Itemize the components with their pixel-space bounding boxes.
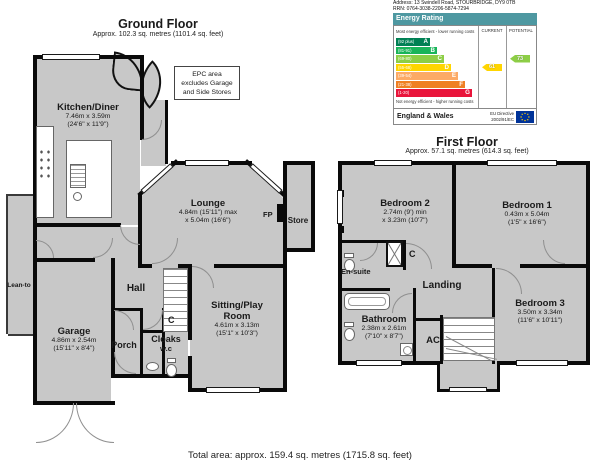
- window: [206, 387, 260, 393]
- room-dims: x 3.23m (10'7"): [355, 217, 455, 225]
- room-dims: 7.46m x 3.59m: [38, 113, 138, 121]
- lean-to-floor: [8, 196, 33, 334]
- window: [185, 160, 229, 166]
- cloaks-label: Cloaks w.c: [143, 334, 189, 353]
- room-name: w.c: [143, 345, 189, 354]
- band-letter: F: [459, 81, 463, 88]
- window: [449, 387, 487, 392]
- wall: [140, 55, 144, 105]
- room-name: Garage: [24, 326, 124, 337]
- ground-floor-subtitle: Approx. 102.3 sq. metres (1101.4 sq. fee…: [58, 31, 258, 38]
- cupboard-label: C: [168, 315, 175, 325]
- lean-to-label: Lean-to: [2, 282, 36, 290]
- window: [42, 54, 100, 60]
- wall: [33, 223, 121, 227]
- bedroom2-label: Bedroom 2 2.74m (9') min x 3.23m (10'7"): [355, 198, 455, 225]
- room-name: Bedroom 1: [477, 200, 577, 211]
- floorplan-page: Ground Floor Approx. 102.3 sq. metres (1…: [0, 0, 600, 464]
- sitting-label: Sitting/Play Room 4.61m x 3.13m (15'1" x…: [190, 300, 284, 338]
- room-name: Bathroom: [337, 314, 431, 325]
- ac-label: AC: [420, 335, 446, 346]
- wall: [586, 161, 590, 365]
- bedroom1-label: Bedroom 1 0.43m x 5.04m (1'5" x 16'6"): [477, 200, 577, 227]
- bathroom-label: Bathroom 2.38m x 2.61m (7'10" x 8'7"): [337, 314, 431, 341]
- epc-address: Address: 13 Swindell Road, STOURBRIDGE, …: [393, 0, 537, 12]
- epc-header: Energy Rating: [393, 13, 537, 25]
- lounge-label: Lounge 4.84m (15'11") max x 5.04m (16'6"…: [158, 198, 258, 225]
- epc-eu-line: EU Directive: [490, 111, 514, 116]
- column-separator: [506, 26, 507, 108]
- bathtub-inner: [348, 297, 386, 306]
- band-letter: D: [445, 64, 449, 71]
- epc-potential-header: POTENTIAL: [506, 28, 536, 33]
- wall: [497, 361, 500, 391]
- shower-cubicle-icon: [386, 241, 403, 267]
- epc-chart: Most energy efficient - lower running co…: [393, 25, 537, 109]
- epc-band-d: (55-68)D: [396, 64, 451, 72]
- sink-icon: [73, 192, 82, 201]
- window: [337, 190, 343, 224]
- porch-label: Porch: [102, 340, 146, 351]
- landing-label: Landing: [412, 280, 472, 292]
- wall: [140, 330, 164, 333]
- epc-note-line: and Side Stores: [175, 88, 239, 97]
- epc-bottom-note: Not energy efficient - higher running co…: [396, 99, 476, 104]
- room-dims: 0.43m x 5.04m: [477, 211, 577, 219]
- epc-rrn-line: RRN: 0764-3038-2206-5874-7294: [393, 6, 537, 12]
- wall: [8, 194, 33, 196]
- window: [487, 160, 557, 166]
- room-name: Lounge: [158, 198, 258, 209]
- room-dims: (15'1" x 10'3"): [190, 330, 284, 338]
- column-separator: [478, 26, 479, 108]
- sink-icon: [400, 343, 413, 356]
- room-dims: (7'10" x 8'7"): [337, 333, 431, 341]
- room-dims: (11'6" x 10'11"): [492, 317, 588, 325]
- staircase: [163, 268, 188, 332]
- ground-floor-title: Ground Floor: [58, 17, 258, 31]
- room-name: Kitchen/Diner: [38, 102, 138, 113]
- cupboard-label: C: [409, 249, 416, 259]
- band-range: (81-91): [398, 48, 412, 53]
- room-dims: 4.61m x 3.13m: [190, 322, 284, 330]
- wall: [452, 264, 492, 268]
- band-range: (39-54): [398, 73, 412, 78]
- toilet-tank-icon: [167, 358, 176, 363]
- epc-eu-directive: EU Directive 2002/91/EC: [490, 111, 514, 121]
- wall: [33, 258, 95, 262]
- epc-band-a: (92 plus)A: [396, 38, 430, 46]
- wall: [283, 248, 315, 252]
- first-floor-title: First Floor: [367, 135, 567, 149]
- hob-icon: [38, 148, 52, 178]
- garage-door-arc: [36, 403, 74, 443]
- band-range: (55-68): [398, 65, 412, 70]
- fireplace-label: FP: [263, 210, 273, 219]
- basin-icon: [146, 362, 159, 371]
- room-name: Sitting/Play: [190, 300, 284, 311]
- epc-top-note: Most energy efficient - lower running co…: [396, 29, 476, 34]
- wall: [520, 264, 590, 268]
- wall: [138, 264, 152, 268]
- ensuite-label: En-suite: [341, 267, 371, 276]
- epc-current-arrow: 61: [482, 64, 502, 72]
- wall: [6, 194, 8, 334]
- room-dims: (24'6" x 11'9"): [38, 121, 138, 129]
- wall: [338, 288, 390, 291]
- store-floor: [285, 165, 311, 248]
- epc-eu-line: 2002/91/EC: [490, 117, 514, 122]
- epc-region-label: England & Wales: [394, 113, 490, 120]
- epc-note-line: EPC area: [175, 70, 239, 79]
- bathtub-icon: [344, 293, 390, 310]
- window: [374, 160, 412, 166]
- kitchen-label: Kitchen/Diner 7.46m x 3.59m (24'6" x 11'…: [38, 102, 138, 129]
- band-range: (92 plus): [398, 39, 414, 44]
- band-range: (69-80): [398, 56, 412, 61]
- band-letter: B: [431, 47, 435, 54]
- epc-band-b: (81-91)B: [396, 47, 437, 55]
- epc-footer: England & Wales EU Directive 2002/91/EC: [393, 109, 537, 125]
- band-letter: A: [424, 38, 428, 45]
- toilet-icon: [166, 364, 177, 377]
- staircase: [443, 317, 495, 361]
- band-letter: E: [452, 72, 456, 79]
- epc-band-g: (1-20)G: [396, 89, 472, 97]
- room-dims: 3.50m x 3.34m: [492, 309, 588, 317]
- toilet-tank-icon: [344, 253, 354, 258]
- room-dims: 2.38m x 2.61m: [337, 325, 431, 333]
- band-range: (21-38): [398, 82, 412, 87]
- stair-bay-area: [440, 361, 497, 389]
- band-letter: C: [438, 55, 442, 62]
- epc-current-header: CURRENT: [478, 28, 506, 33]
- wall: [111, 374, 191, 378]
- first-floor-subtitle: Approx. 57.1 sq. metres (614.3 sq. feet): [367, 148, 567, 155]
- sink-bowl: [403, 346, 412, 355]
- store-label: Store: [284, 216, 312, 225]
- window: [356, 360, 402, 366]
- wall: [437, 361, 440, 391]
- room-name: Bedroom 3: [492, 298, 588, 309]
- wall: [165, 100, 168, 164]
- room-dims: x 5.04m (16'6"): [158, 217, 258, 225]
- epc-potential-arrow: 73: [510, 55, 530, 63]
- room-dims: 4.84m (15'11") max: [158, 209, 258, 217]
- room-name: Room: [190, 311, 284, 322]
- window: [516, 360, 568, 366]
- garage-door-arc: [76, 403, 114, 443]
- epc-band-f: (21-38)F: [396, 81, 465, 89]
- room-dims: (1'5" x 16'6"): [477, 219, 577, 227]
- epc-band-c: (69-80)C: [396, 55, 444, 63]
- bedroom3-label: Bedroom 3 3.50m x 3.34m (11'6" x 10'11"): [492, 298, 588, 325]
- epc-band-e: (39-54)E: [396, 72, 458, 80]
- wall: [214, 264, 285, 268]
- band-range: (1-20): [398, 90, 409, 95]
- wall: [311, 161, 315, 252]
- appliance-icon: [70, 164, 86, 188]
- eu-flag-icon: [516, 111, 534, 123]
- epc-panel: Address: 13 Swindell Road, STOURBRIDGE, …: [393, 0, 537, 125]
- hall-label: Hall: [116, 283, 156, 295]
- epc-note-box: EPC area excludes Garage and Side Stores: [174, 66, 240, 100]
- total-area-text: Total area: approx. 159.4 sq. metres (17…: [0, 450, 600, 461]
- epc-note-line: excludes Garage: [175, 79, 239, 88]
- band-letter: G: [465, 89, 470, 96]
- room-dims: 2.74m (9') min: [355, 209, 455, 217]
- room-name: Bedroom 2: [355, 198, 455, 209]
- shower-x-lines: [388, 243, 401, 265]
- chimney-nib: [338, 226, 344, 233]
